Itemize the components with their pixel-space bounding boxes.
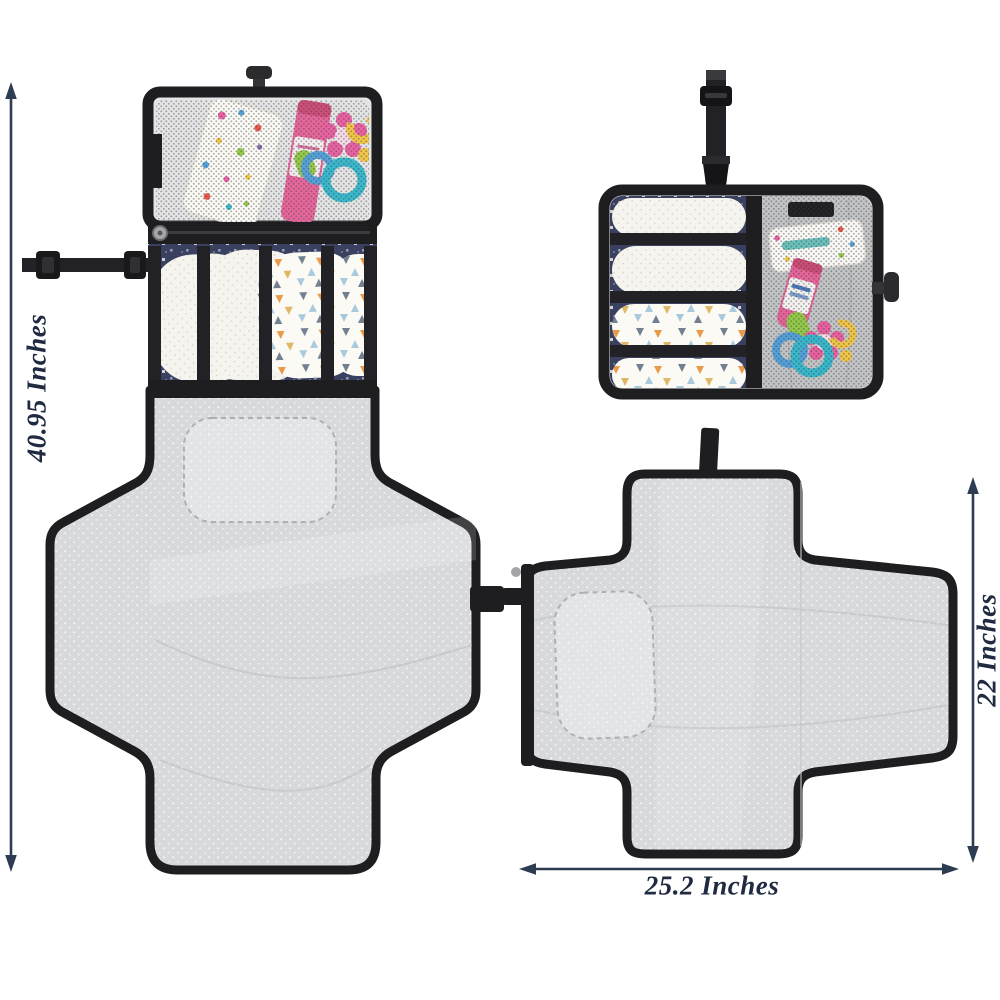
elastic-strap — [321, 246, 334, 384]
strap-end-tab — [22, 260, 38, 270]
elastic-strap — [364, 246, 377, 384]
elastic-strap — [610, 345, 750, 357]
product-illustration — [0, 0, 1000, 1000]
elastic-strap — [197, 246, 210, 384]
width-dimension-label: 25.2 Inches — [645, 871, 780, 902]
diaper-stack-print — [612, 304, 746, 348]
elastic-strap — [610, 291, 750, 303]
hanging-strap — [700, 70, 732, 194]
folded-height-dimension-label: 22 Inches — [972, 593, 1000, 706]
folded-body — [604, 190, 899, 394]
product-dimension-image: 40.95 Inches 22 Inches 25.2 Inches — [0, 0, 1000, 1000]
diaper-stack-print — [612, 358, 746, 392]
view-folded — [604, 70, 899, 394]
mesh-pocket-side — [762, 196, 872, 388]
zipper-pull-icon — [511, 567, 521, 577]
mat-side-tab — [470, 586, 504, 612]
head-pillow-front — [184, 418, 336, 522]
elastic-strap — [259, 246, 272, 384]
height-dimension-arrow — [5, 82, 17, 872]
center-divider — [746, 196, 762, 388]
strap-slider — [700, 86, 732, 106]
diaper-stack — [612, 246, 748, 294]
side-strap-buckle — [22, 251, 152, 279]
zipper-bar — [148, 222, 377, 244]
elastic-strap — [610, 233, 750, 245]
diaper-stack — [612, 198, 746, 236]
pocket-side-tab — [148, 134, 162, 188]
height-dimension-label: 40.95 Inches — [22, 314, 53, 463]
mat-left-tab — [502, 588, 524, 605]
mesh-pocket-top — [148, 92, 377, 231]
diaper-pocket-panel — [148, 244, 400, 398]
fold-bar — [148, 380, 377, 398]
view-unfolded-front — [22, 66, 504, 870]
view-unfolded-back — [502, 428, 953, 854]
head-pillow-back — [553, 590, 656, 739]
